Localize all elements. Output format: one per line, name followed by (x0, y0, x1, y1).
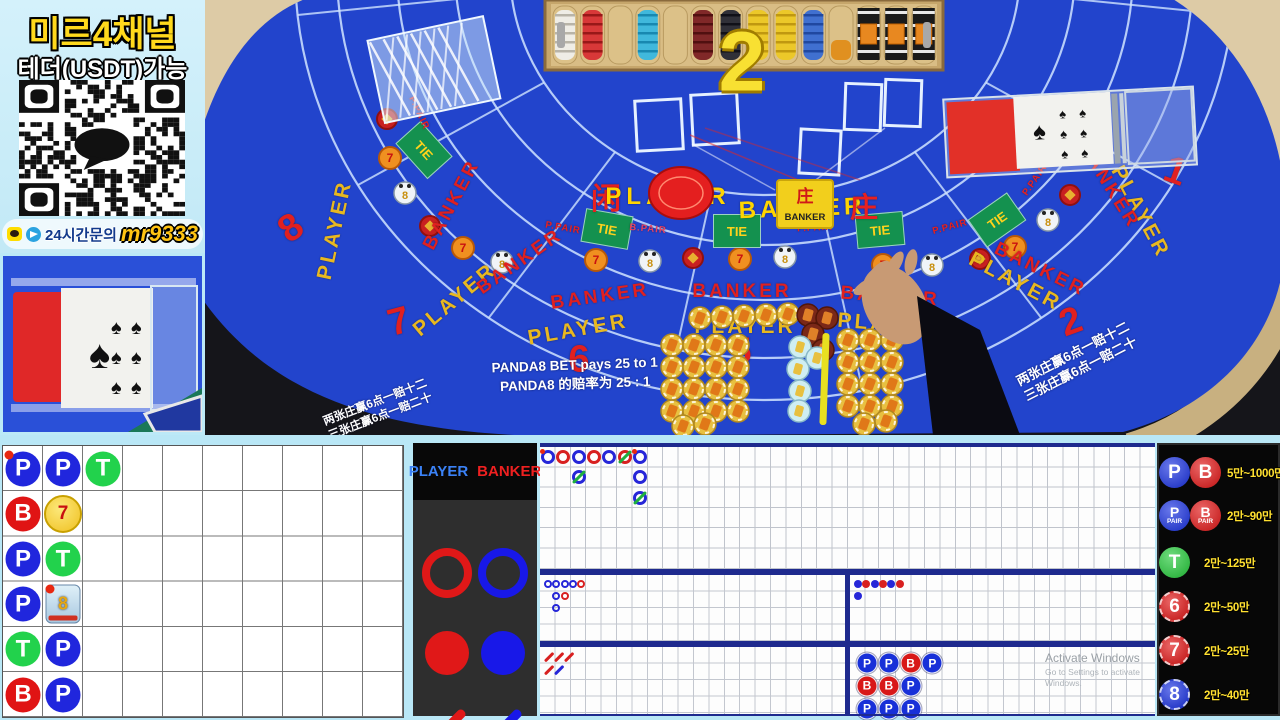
limit-range: 2만~50만 (1204, 599, 1249, 615)
seven-coin-icon: 7 (872, 254, 894, 276)
big-eye-red (577, 580, 585, 588)
big-eye-blue (544, 580, 552, 588)
big-road-P (572, 450, 586, 464)
bet-limits-panel: PB5만~1000만PPAIRBPAIR2만~90만T2만~125만62만~50… (1157, 443, 1280, 716)
seven-coin-icon: 7 (585, 249, 607, 271)
limit-icon-7: 7 (1159, 635, 1190, 666)
limit-range: 2만~90만 (1227, 508, 1272, 524)
svg-text:8: 8 (782, 254, 788, 266)
limit-icon-PPAIR: PPAIR (1159, 500, 1190, 531)
big-road-B (587, 450, 601, 464)
qr-code (19, 80, 185, 216)
svg-text:♠: ♠ (131, 317, 142, 339)
svg-text:8: 8 (402, 190, 408, 202)
panda-coin-icon: 8 (774, 246, 796, 268)
contact-id: mr9333 (121, 221, 198, 247)
derived-roads-panel: PPBPBBPPPP Activate Windows Go to Settin… (540, 443, 1155, 716)
big-road-dot (540, 449, 545, 454)
svg-text:7: 7 (387, 151, 394, 165)
svg-text:♠: ♠ (111, 377, 122, 399)
bead-road: PBPPTBP7T8PPT (2, 445, 404, 718)
limit-icon-B: B (1190, 457, 1221, 488)
panda-coin-icon: 8 (1037, 209, 1059, 231)
limit-row: T2만~125만 (1159, 541, 1278, 584)
seven-coin-icon: 7 (1004, 236, 1026, 258)
svg-text:7: 7 (880, 258, 887, 272)
bead-cell-P: P (46, 632, 81, 667)
bead-cell-B: B (6, 677, 41, 712)
bead-cell-T: T (6, 632, 41, 667)
chip-rack (545, 0, 943, 70)
big-road-P (633, 470, 647, 484)
big-road-P (602, 450, 616, 464)
coin-coin-icon (970, 249, 990, 269)
svg-text:8: 8 (647, 258, 653, 270)
contact-prefix: 24시간문의 (45, 224, 117, 245)
limit-row: PPAIRBPAIR2만~90만 (1159, 494, 1278, 537)
promo-panel: 미르4채널 테더(USDT)가능 24시간문의 mr9333 (0, 0, 205, 253)
small-road-red (896, 580, 904, 588)
baccarat-table-video: 787878787878 PLAYERPLAYERPLAYERPLAYERPLA… (205, 0, 1280, 435)
small-road-blue (854, 592, 862, 600)
telegram-icon (26, 227, 41, 242)
panda-dot (5, 450, 14, 459)
cockroach-road (540, 647, 845, 714)
limit-range: 2만~40만 (1204, 687, 1249, 703)
cockroach-blue (554, 664, 564, 674)
contact-line: 24시간문의 mr9333 (2, 219, 203, 249)
legend-solid-blue (481, 631, 525, 675)
small-road-blue (887, 580, 895, 588)
summary-B: B (900, 653, 921, 674)
svg-text:8: 8 (1045, 217, 1051, 229)
limit-icon-P: P (1159, 457, 1190, 488)
coin-coin-icon (1060, 185, 1080, 205)
bead-panda8: 8 (46, 585, 81, 624)
svg-text:♠: ♠ (111, 347, 122, 369)
big-eye-blue (552, 580, 560, 588)
limit-row: 82만~40만 (1159, 673, 1278, 716)
bead-cell-T: T (86, 451, 121, 486)
cockroach-red (544, 664, 554, 674)
limit-icon-8: 8 (1159, 679, 1190, 710)
limit-row: PB5만~1000만 (1159, 451, 1278, 494)
cockroach-red (564, 652, 574, 662)
panda-coin-icon: 8 (921, 254, 943, 276)
svg-text:7: 7 (1012, 240, 1019, 254)
bead-cell-T: T (46, 542, 81, 577)
big-road (540, 447, 1155, 569)
small-road-blue (871, 580, 879, 588)
cockroach-red (544, 652, 554, 662)
coin-coin-icon (683, 248, 703, 268)
svg-text:8: 8 (499, 259, 505, 271)
summary-B: B (878, 675, 899, 696)
svg-text:7: 7 (460, 241, 467, 255)
legend-header: PLAYER BANKER (413, 443, 537, 500)
legend-slash-blue (483, 708, 523, 720)
legend-solid-red (425, 631, 469, 675)
limit-row: 62만~50만 (1159, 585, 1278, 628)
coin-coin-icon (377, 109, 397, 129)
small-road-red (879, 580, 887, 588)
panda-dot (46, 585, 55, 594)
bead-cell-B: B (6, 496, 41, 531)
summary-P: P (922, 653, 943, 674)
channel-subtitle: 테더(USDT)가능 (0, 49, 205, 84)
kakao-icon (7, 227, 22, 241)
bead-cell-P: P (6, 587, 41, 622)
svg-text:♠: ♠ (131, 347, 142, 369)
shoe-closeup-graphic: ♠ ♠♠ ♠♠ ♠♠ (3, 256, 202, 432)
small-road-blue (854, 580, 862, 588)
legend-hollow-red (422, 548, 472, 598)
big-road-B (556, 450, 570, 464)
summary-P: P (857, 653, 878, 674)
summary-P: P (878, 653, 899, 674)
panda-coin-icon: 8 (639, 250, 661, 272)
legend-panel: PLAYER BANKER (413, 443, 537, 716)
table-base-graphic: 787878787878 (205, 0, 1280, 435)
windows-watermark: Activate Windows Go to Settings to activ… (1045, 651, 1155, 689)
spade-icon: ♠ (89, 333, 110, 377)
svg-text:♠: ♠ (131, 377, 142, 399)
summary-B: B (857, 675, 878, 696)
legend-hollow-blue (478, 548, 528, 598)
summary-P: P (900, 675, 921, 696)
legend-player-label: PLAYER (409, 463, 468, 480)
bead-cell-P: P (46, 677, 81, 712)
bead-cell-P: P (46, 451, 81, 486)
bead-fortune7: 7 (44, 495, 82, 533)
baccarat-stream-screen: 미르4채널 테더(USDT)가능 24시간문의 mr9333 ♠ ♠♠ ♠♠ ♠… (0, 0, 1280, 720)
coin-coin-icon (420, 216, 440, 236)
limit-icon-6: 6 (1159, 591, 1190, 622)
big-eye-road (540, 575, 845, 641)
small-road-red (862, 580, 870, 588)
big-eye-blue (552, 604, 560, 612)
limit-range: 2만~125만 (1204, 555, 1255, 571)
legend-slash-red (427, 708, 467, 720)
svg-text:7: 7 (593, 253, 600, 267)
seven-coin-icon: 7 (379, 147, 401, 169)
panda8-ribbon (49, 616, 78, 621)
bead-cell-P: P (6, 451, 41, 486)
shoe-closeup-inset: ♠ ♠♠ ♠♠ ♠♠ (0, 253, 205, 435)
svg-text:8: 8 (929, 262, 935, 274)
big-eye-blue (552, 592, 560, 600)
seven-coin-icon: 7 (729, 248, 751, 270)
limit-range: 5만~1000만 (1227, 465, 1280, 481)
big-eye-blue (561, 580, 569, 588)
panda-coin-icon: 8 (491, 251, 513, 273)
panda-coin-icon: 8 (394, 182, 416, 204)
svg-text:♠: ♠ (111, 317, 122, 339)
limit-icon-T: T (1159, 547, 1190, 578)
legend-banker-label: BANKER (477, 463, 541, 480)
scoreboard-frame: PBPPTBP7T8PPT PLAYER BANKER PPBPBBPPPP (0, 435, 1280, 720)
seven-coin-icon: 7 (452, 237, 474, 259)
big-eye-blue (569, 580, 577, 588)
big-eye-red (561, 592, 569, 600)
svg-text:7: 7 (737, 252, 744, 266)
cockroach-red (554, 652, 564, 662)
small-road (850, 575, 1155, 641)
limit-range: 2만~25만 (1204, 643, 1249, 659)
limit-row: 72만~25만 (1159, 629, 1278, 672)
bead-cell-P: P (6, 542, 41, 577)
limit-icon-BPAIR: BPAIR (1190, 500, 1221, 531)
